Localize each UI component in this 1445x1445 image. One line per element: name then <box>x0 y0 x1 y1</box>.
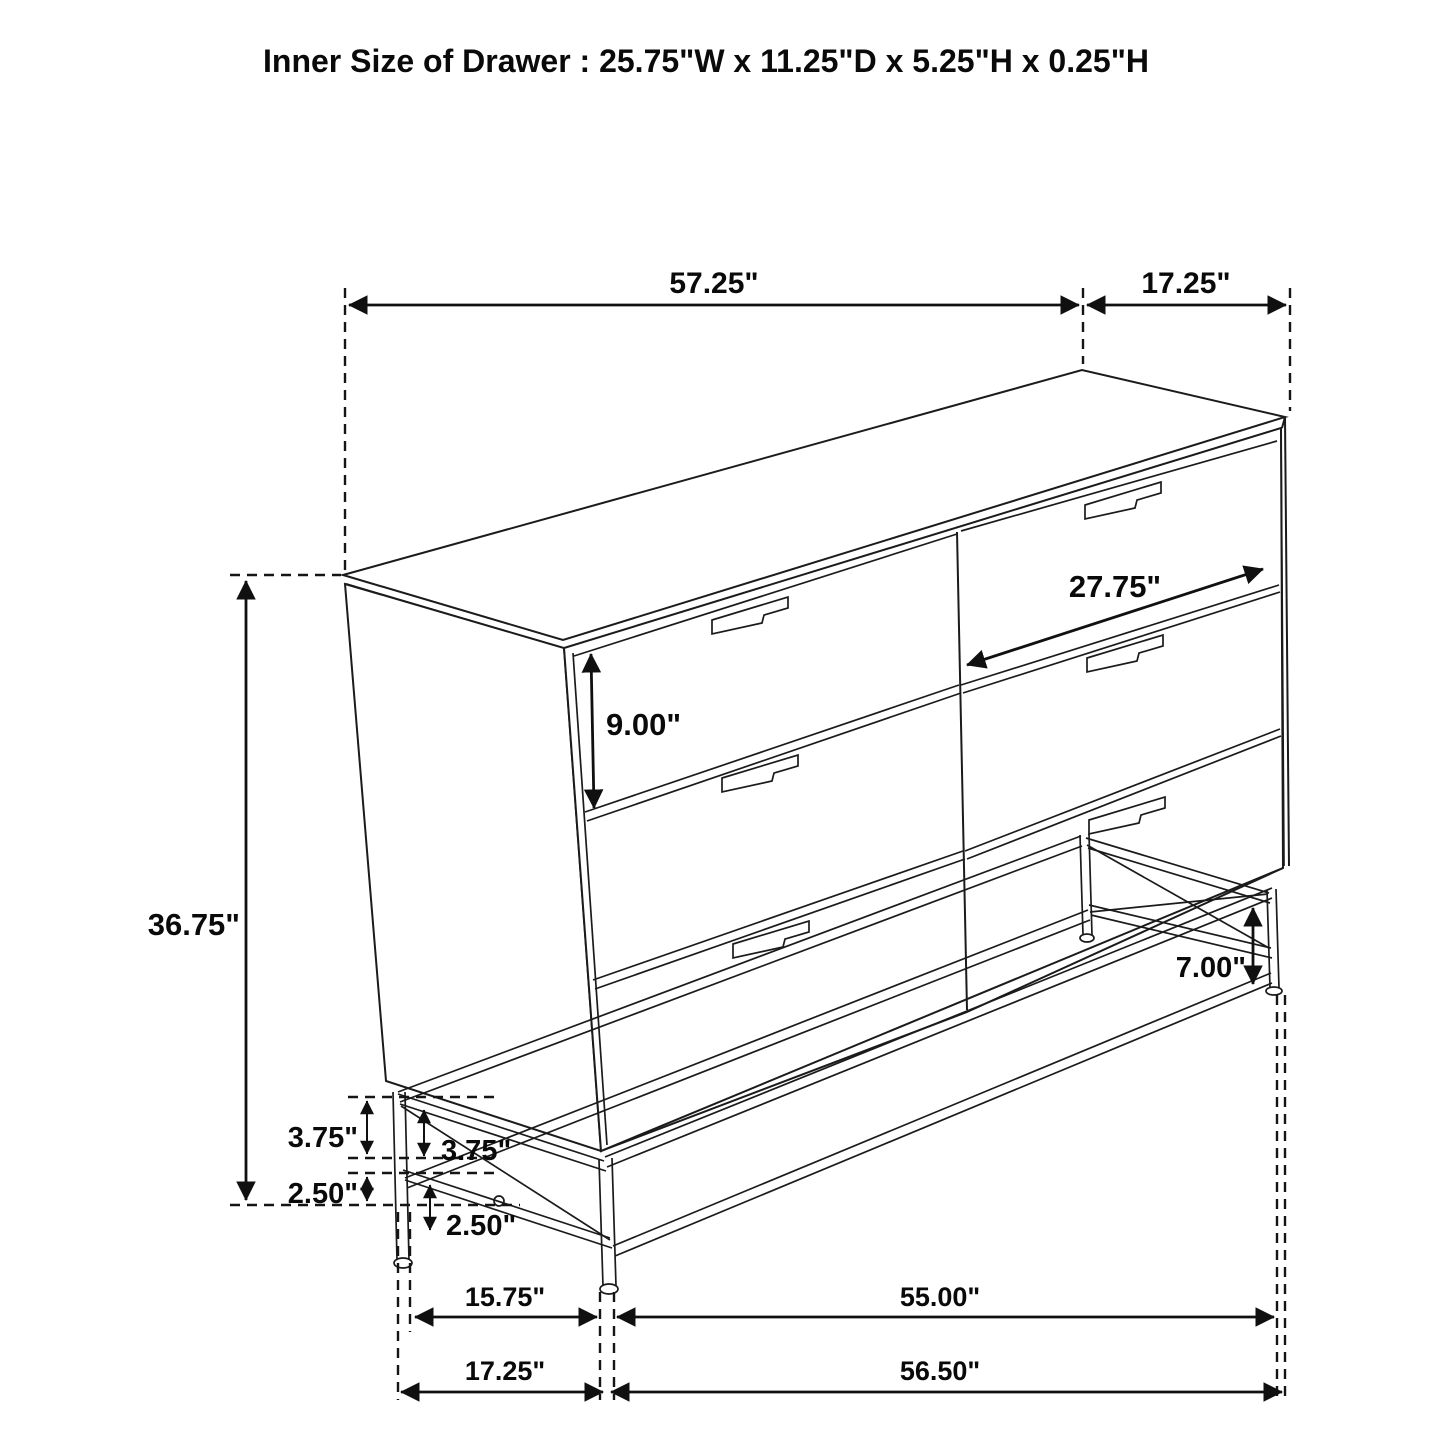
dim-rail-upper-outer: 3.75" <box>288 1101 367 1154</box>
dimension-diagram-page: Inner Size of Drawer : 25.75"W x 11.25"D… <box>0 0 1445 1445</box>
left-side-panel <box>345 584 601 1151</box>
dim-rail-upper-inner-label: 3.75" <box>441 1135 511 1167</box>
dim-base-front-overall: 56.50" <box>611 1356 1282 1392</box>
dim-base-leg-span-label: 15.75" <box>465 1282 545 1312</box>
dim-base-front-inner: 55.00" <box>617 1282 1274 1317</box>
dim-base-clearance: 7.00" <box>1176 908 1253 984</box>
dim-base-leg-span: 15.75" <box>415 1282 597 1317</box>
dim-drawer-width-label: 27.75" <box>1069 569 1161 604</box>
dim-base-left-depth-label: 17.25" <box>465 1356 545 1386</box>
dim-rail-lower-outer: 2.50" <box>288 1177 367 1210</box>
dim-top-depth-label: 17.25" <box>1141 267 1230 300</box>
dim-base-front-inner-label: 55.00" <box>900 1282 980 1312</box>
dim-top-width: 57.25" <box>349 267 1079 305</box>
dim-base-clearance-label: 7.00" <box>1176 952 1246 984</box>
dim-overall-height-label: 36.75" <box>148 907 240 942</box>
dim-overall-height: 36.75" <box>148 581 246 1200</box>
dim-base-left-depth: 17.25" <box>401 1356 603 1392</box>
front-right-leg <box>1266 889 1282 995</box>
dim-base-front-overall-label: 56.50" <box>900 1356 980 1386</box>
dim-rail-upper-outer-label: 3.75" <box>288 1122 358 1154</box>
right-front-outer-edge <box>1285 417 1289 866</box>
dim-rail-lower-outer-label: 2.50" <box>288 1178 358 1210</box>
dim-rail-lower-inner-label: 2.50" <box>446 1210 516 1242</box>
front-right-foot <box>1266 987 1282 995</box>
page-title: Inner Size of Drawer : 25.75"W x 11.25"D… <box>263 43 1149 79</box>
dim-top-width-label: 57.25" <box>669 267 758 300</box>
dim-top-depth: 17.25" <box>1087 267 1286 305</box>
dresser-dimension-drawing: Inner Size of Drawer : 25.75"W x 11.25"D… <box>0 0 1445 1445</box>
front-left-leg <box>599 1158 618 1294</box>
back-left-leg <box>393 1092 412 1268</box>
dim-drawer-height-label: 9.00" <box>606 707 681 742</box>
front-left-foot <box>600 1284 618 1294</box>
